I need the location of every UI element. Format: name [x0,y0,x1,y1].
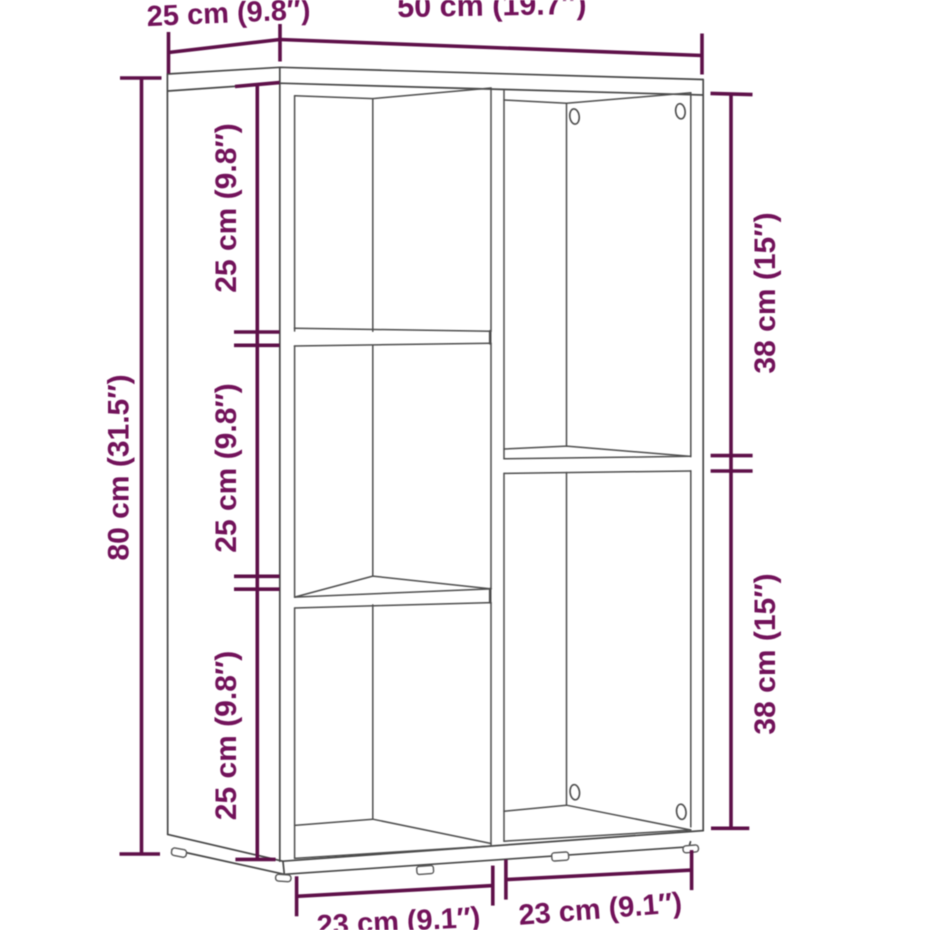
svg-text:25 cm (9.8″): 25 cm (9.8″) [210,123,243,292]
svg-text:25 cm (9.8″): 25 cm (9.8″) [210,383,243,552]
svg-text:25 cm (9.8″): 25 cm (9.8″) [210,651,243,820]
svg-text:38 cm (15″): 38 cm (15″) [749,212,782,373]
svg-text:50 cm (19.7″): 50 cm (19.7″) [397,0,587,24]
svg-text:80 cm (31.5″): 80 cm (31.5″) [103,374,136,560]
svg-text:38 cm (15″): 38 cm (15″) [749,573,782,734]
